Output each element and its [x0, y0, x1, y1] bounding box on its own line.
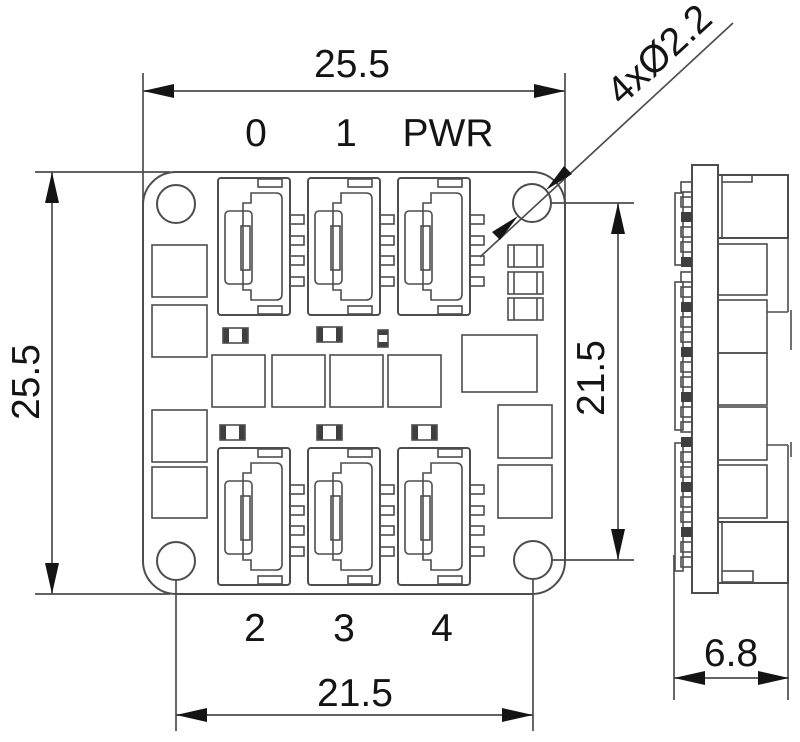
mounting-hole-top-right — [513, 184, 551, 222]
connector-label-1: 1 — [335, 112, 357, 155]
connector-1 — [308, 178, 394, 315]
connector-label-3: 3 — [333, 607, 355, 650]
component-pads — [152, 245, 552, 518]
connector-label-0: 0 — [245, 112, 267, 155]
connector-pwr — [398, 178, 484, 315]
hole-callout-text: 4xØ2.2 — [599, 0, 721, 113]
dim-hole-pitch-horizontal: 21.5 — [176, 580, 533, 731]
drawing-page: 0 1 PWR 2 3 4 — [0, 0, 800, 737]
hole-callout: 4xØ2.2 — [480, 0, 733, 257]
dim-side-width-text: 6.8 — [704, 632, 758, 675]
smd-components — [220, 245, 543, 440]
dim-board-height-text: 25.5 — [5, 344, 48, 420]
mounting-hole-bottom-left — [157, 542, 195, 580]
dim-board-width-text: 25.5 — [314, 43, 390, 86]
connector-label-2: 2 — [244, 607, 266, 650]
dim-hole-pitch-vertical-text: 21.5 — [570, 340, 613, 416]
connectors — [218, 178, 484, 585]
pcb-edge — [692, 165, 718, 593]
mounting-hole-bottom-right — [514, 541, 552, 579]
dim-board-height: 25.5 — [5, 172, 170, 594]
front-view: 0 1 PWR 2 3 4 — [143, 112, 565, 650]
connector-profiles — [718, 175, 791, 583]
side-view — [675, 165, 791, 593]
dim-hole-pitch-vertical: 21.5 — [551, 203, 634, 560]
connector-label-4: 4 — [431, 607, 453, 650]
connector-2 — [218, 448, 304, 585]
connector-4 — [398, 448, 484, 585]
connector-0 — [218, 178, 304, 315]
technical-drawing: 0 1 PWR 2 3 4 — [0, 0, 800, 737]
connector-3 — [308, 448, 394, 585]
dim-hole-pitch-horizontal-text: 21.5 — [317, 672, 393, 715]
ic-pad — [462, 335, 537, 392]
mounting-hole-top-left — [157, 185, 195, 223]
connector-label-pwr: PWR — [403, 112, 494, 155]
